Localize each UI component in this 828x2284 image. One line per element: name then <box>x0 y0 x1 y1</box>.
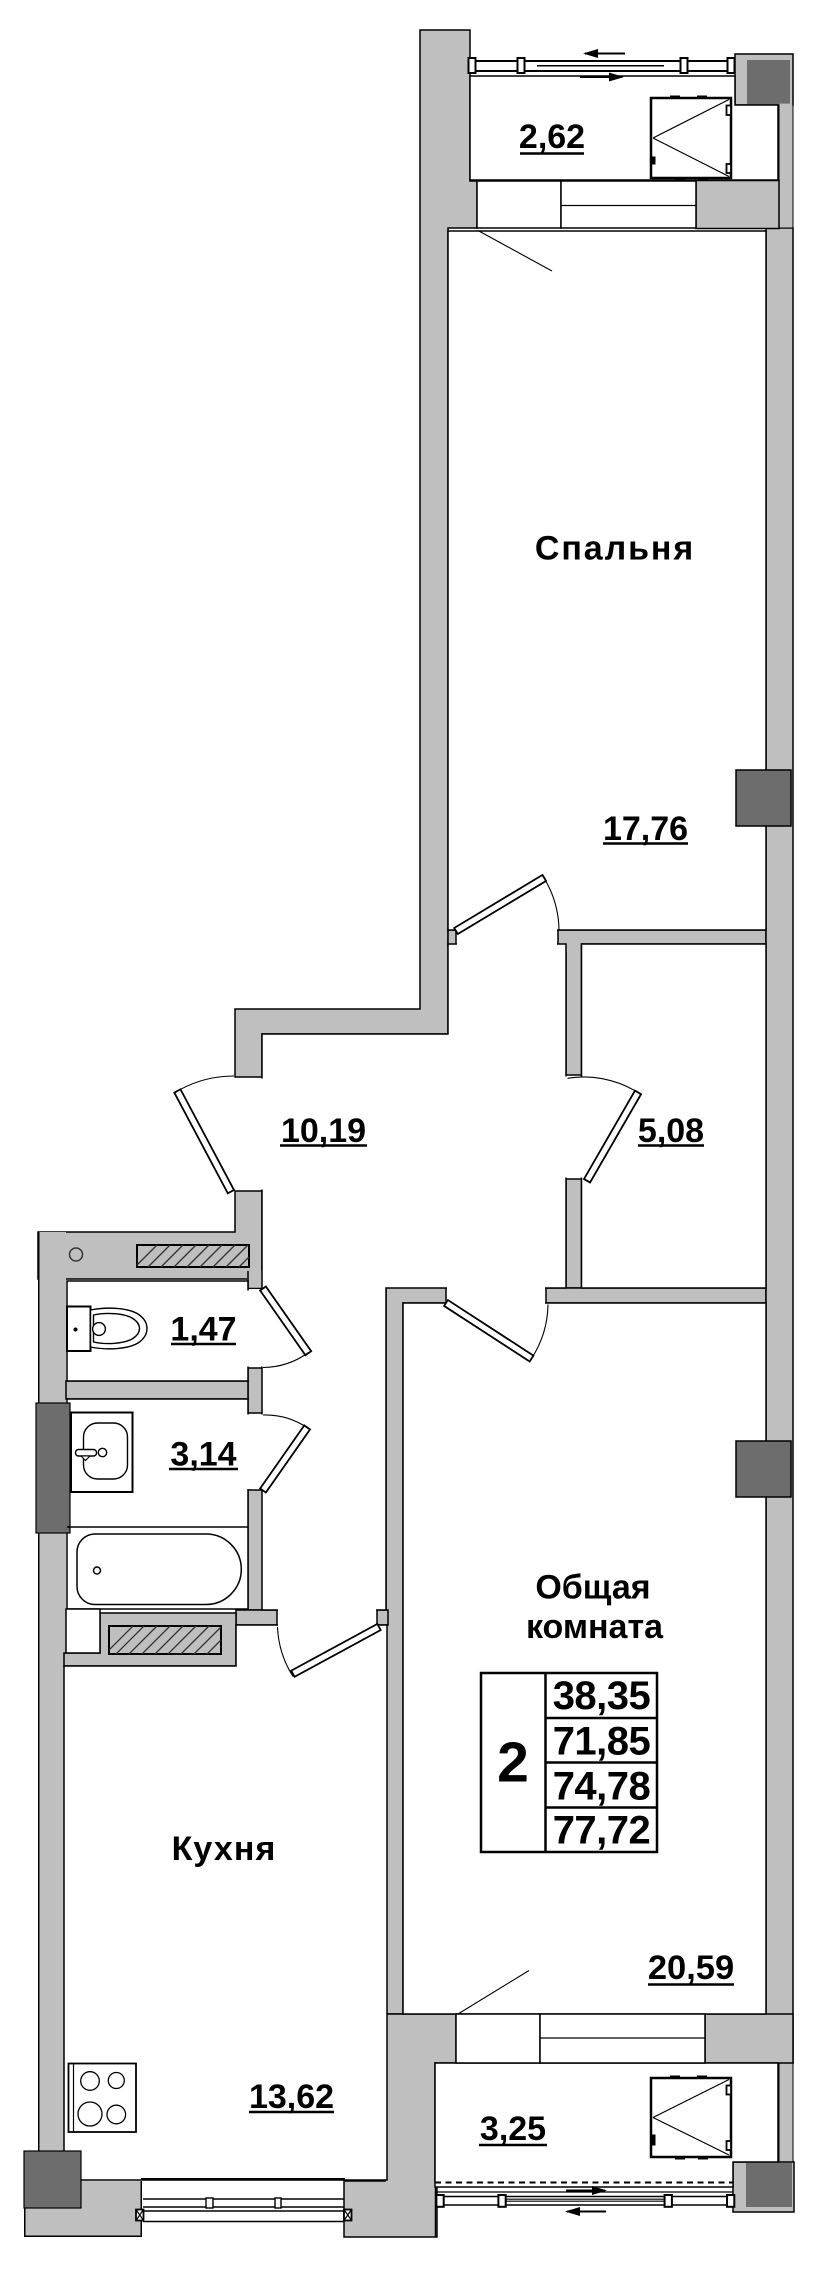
svg-text:2,62: 2,62 <box>519 118 585 156</box>
svg-text:3,25: 3,25 <box>480 2110 546 2148</box>
svg-text:20,59: 20,59 <box>648 1949 734 1987</box>
svg-text:комната: комната <box>526 1608 664 1646</box>
svg-text:38,35: 38,35 <box>553 1674 651 1718</box>
svg-text:13,62: 13,62 <box>249 2078 334 2116</box>
svg-text:71,85: 71,85 <box>553 1720 651 1764</box>
svg-text:Кухня: Кухня <box>172 1830 277 1868</box>
svg-text:77,72: 77,72 <box>553 1809 651 1853</box>
svg-text:Общая: Общая <box>535 1569 650 1607</box>
svg-text:74,78: 74,78 <box>553 1765 651 1809</box>
svg-text:Спальня: Спальня <box>535 530 695 568</box>
svg-text:2: 2 <box>497 1731 529 1795</box>
